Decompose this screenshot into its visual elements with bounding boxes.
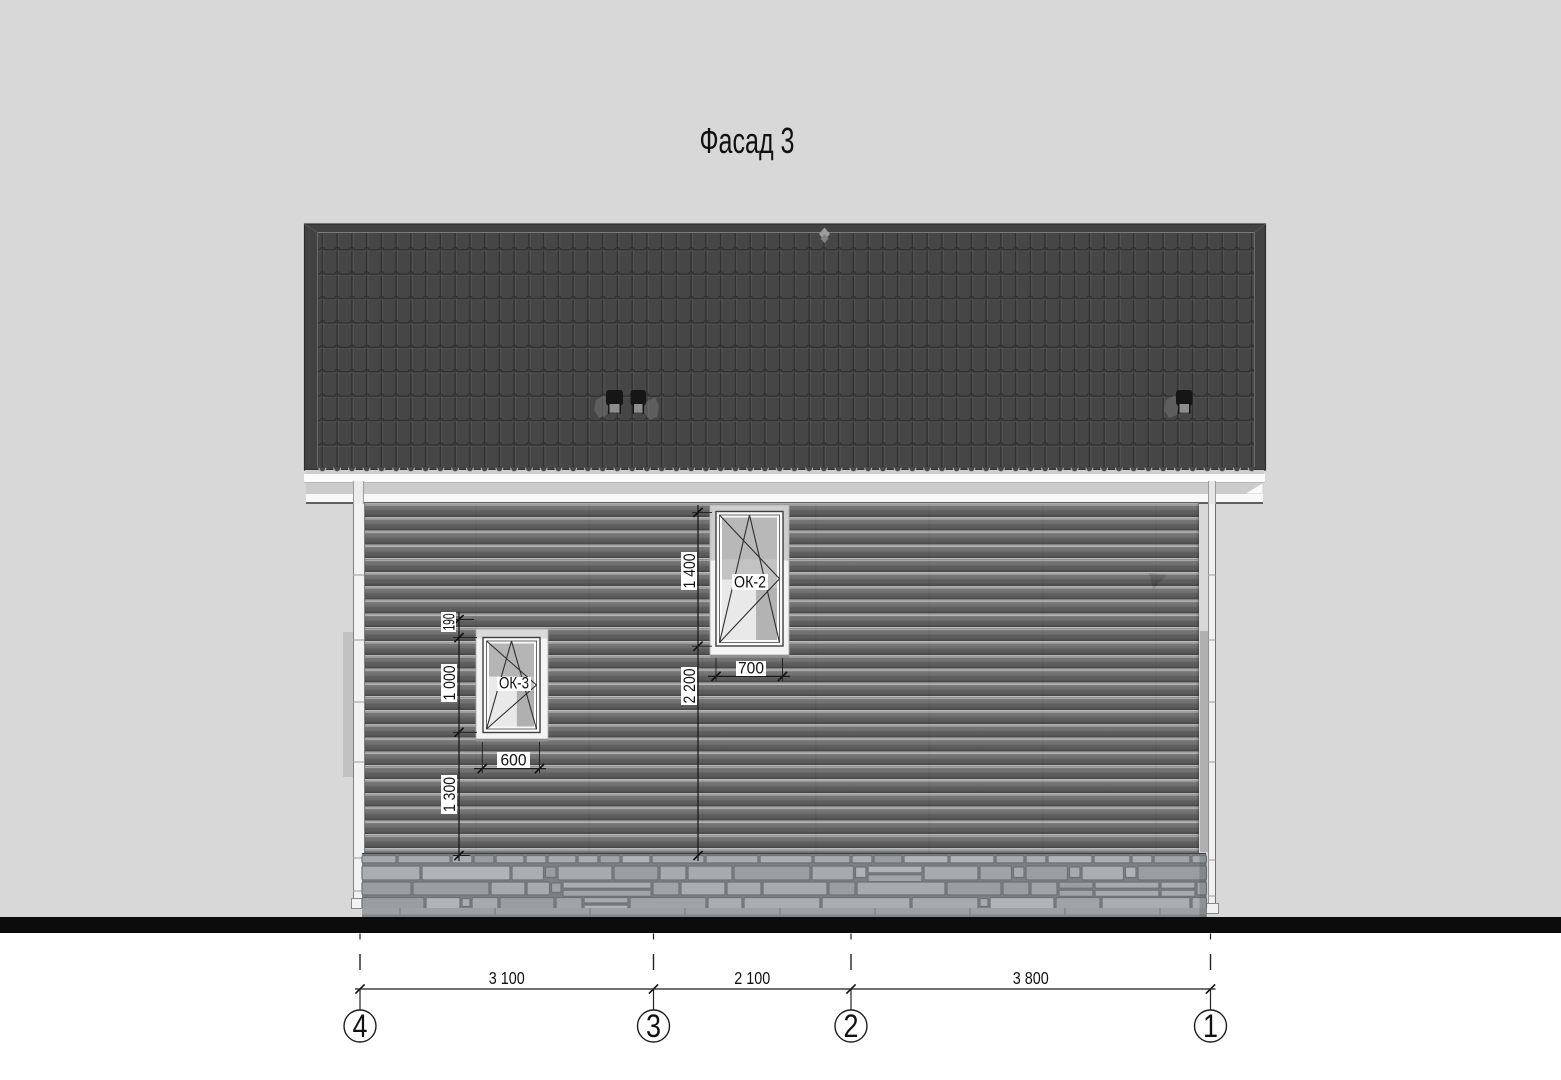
svg-text:3 100: 3 100 [489,968,525,988]
svg-text:1 000: 1 000 [441,666,459,701]
svg-text:1 300: 1 300 [441,777,459,812]
svg-text:4: 4 [353,1008,368,1044]
svg-text:700: 700 [738,660,764,678]
svg-text:2 200: 2 200 [681,669,699,704]
svg-text:600: 600 [501,752,527,770]
svg-text:2: 2 [844,1008,859,1044]
svg-text:3 800: 3 800 [1013,968,1049,988]
svg-text:190: 190 [440,614,458,631]
svg-text:1: 1 [1203,1008,1218,1044]
svg-text:3: 3 [646,1008,661,1044]
svg-text:1 400: 1 400 [681,554,699,589]
svg-text:2 100: 2 100 [734,968,770,988]
